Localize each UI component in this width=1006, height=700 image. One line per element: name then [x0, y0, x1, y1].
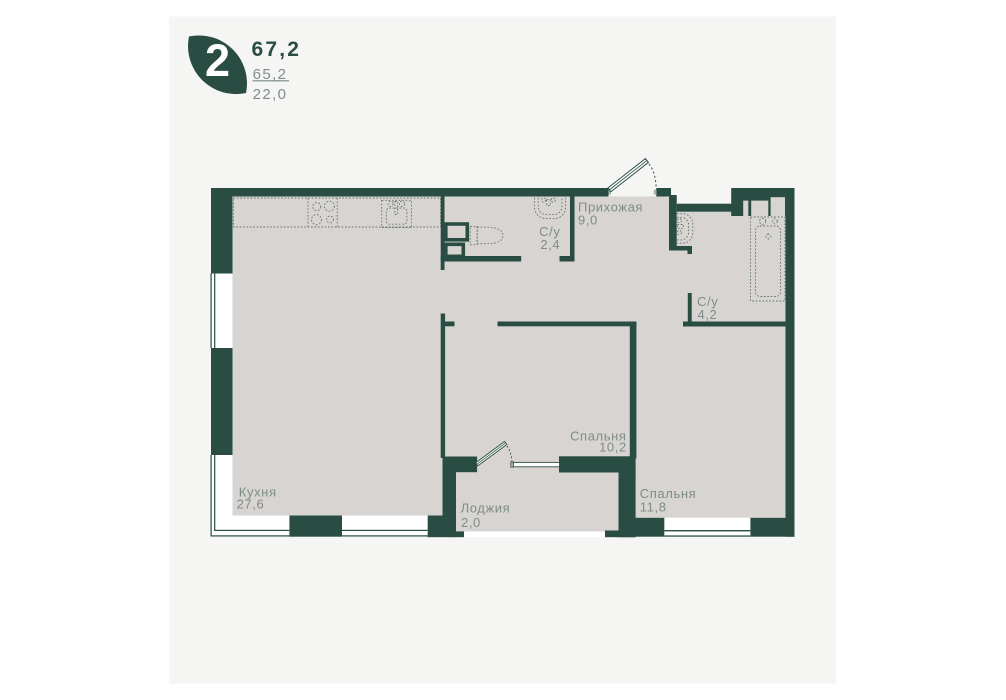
svg-text:2: 2 [205, 35, 230, 86]
svg-text:27,6: 27,6 [237, 496, 265, 511]
svg-text:2,0: 2,0 [461, 515, 481, 530]
svg-text:11,8: 11,8 [640, 499, 667, 514]
svg-text:2,4: 2,4 [540, 237, 560, 252]
svg-text:67,2: 67,2 [252, 38, 302, 61]
svg-text:Лоджия: Лоджия [461, 500, 511, 515]
svg-text:4,2: 4,2 [698, 307, 718, 322]
svg-text:22,0: 22,0 [253, 86, 288, 103]
svg-text:10,2: 10,2 [599, 440, 627, 455]
svg-text:9,0: 9,0 [578, 213, 598, 228]
